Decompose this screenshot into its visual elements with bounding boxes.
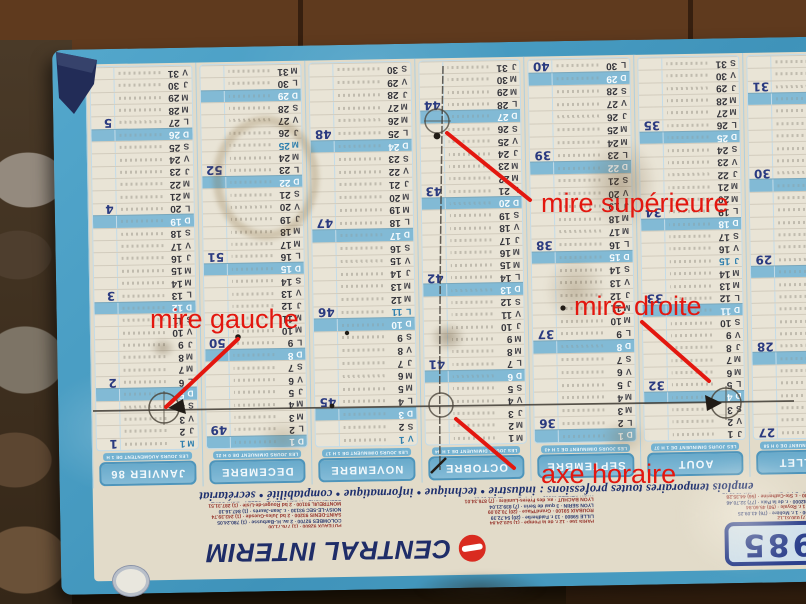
week-number-cell	[748, 56, 772, 68]
day-row-juillet-12: V12	[752, 289, 806, 303]
week-number-cell	[752, 279, 776, 291]
day-row-aout-6: M6	[643, 365, 744, 379]
saint-name-marks	[231, 267, 273, 271]
saint-name-marks	[229, 106, 271, 110]
week-number-cell: 3	[94, 290, 118, 302]
saint-name-marks	[448, 115, 490, 119]
week-number-cell	[421, 198, 445, 210]
saint-name-marks	[557, 102, 599, 106]
day-row-janvier-86-13: L133	[94, 288, 195, 302]
day-row-janvier-86-7: M7	[95, 362, 196, 376]
week-number-cell	[642, 268, 666, 280]
week-number-cell: 42	[423, 272, 447, 284]
week-number-cell	[201, 115, 225, 127]
day-letter: M	[400, 192, 409, 201]
day-number: 23	[275, 164, 290, 174]
day-row-janvier-86-2: J2	[97, 424, 198, 438]
day-row-janvier-86-16: J16	[93, 251, 194, 265]
saint-name-marks	[120, 158, 162, 162]
week-number-cell	[533, 341, 557, 353]
day-row-septembre-13: V13	[532, 275, 633, 290]
day-letter: D	[404, 409, 413, 418]
saint-name-marks	[670, 309, 712, 313]
day-number: 3	[389, 409, 404, 419]
day-letter: M	[404, 384, 413, 393]
month-subtitle-juillet: Les jours diminuent de 0 h 58 mn	[760, 440, 806, 450]
day-letter: L	[180, 117, 189, 126]
saint-name-marks	[562, 396, 604, 400]
week-number-cell	[202, 202, 226, 214]
day-letter: S	[182, 229, 191, 238]
day-row-decembre-3: M3	[206, 410, 307, 424]
saint-name-marks	[667, 111, 709, 115]
day-number: 10	[497, 321, 512, 331]
annotated-calendar-photo: 1985 CENTRAL INTERIM CHALINS 0600 · (7) …	[0, 0, 806, 604]
day-letter: D	[622, 341, 631, 350]
saint-name-marks	[339, 183, 381, 187]
saint-name-marks	[341, 246, 383, 250]
saint-name-marks	[559, 192, 601, 196]
saint-name-marks	[230, 168, 272, 172]
day-number: 15	[715, 255, 730, 265]
day-letter: M	[509, 173, 518, 182]
day-row-juillet-19: V19	[750, 202, 806, 216]
day-row-octobre-26: S26	[420, 121, 521, 135]
saint-name-marks	[339, 132, 381, 136]
day-letter: L	[292, 251, 301, 260]
day-row-janvier-86-29: M29	[91, 90, 192, 104]
day-letter: M	[730, 268, 739, 277]
day-row-juillet-26: V26	[749, 116, 806, 130]
week-number-cell	[530, 137, 554, 149]
day-row-septembre-10: M10	[533, 313, 634, 328]
week-number-cell	[316, 434, 340, 446]
day-number: 17	[605, 226, 620, 236]
day-number: 5	[169, 389, 184, 399]
saint-name-marks	[672, 383, 714, 387]
day-number: 11	[168, 314, 183, 324]
day-row-novembre-5: M5	[315, 381, 416, 396]
day-letter: V	[182, 241, 191, 250]
day-number: 24	[165, 154, 180, 164]
saint-name-marks	[667, 136, 709, 140]
saint-name-marks	[777, 109, 806, 113]
week-number-cell	[205, 350, 229, 362]
saint-name-marks	[776, 84, 806, 88]
day-row-octobre-11: V11	[423, 307, 524, 321]
saint-name-marks	[450, 251, 492, 255]
day-letter: V	[513, 396, 522, 405]
week-number-cell	[312, 230, 336, 242]
week-number-cell	[422, 260, 446, 272]
week-number-cell	[643, 367, 667, 379]
week-number-cell: 32	[644, 380, 668, 392]
day-letter: S	[291, 190, 300, 199]
day-number: 21	[166, 191, 181, 201]
day-row-septembre-12: J12	[533, 288, 634, 303]
week-number-cell	[96, 401, 120, 413]
week-number-cell	[424, 346, 448, 358]
saint-name-marks	[668, 160, 710, 164]
saint-name-marks	[666, 62, 708, 66]
week-number-cell: 46	[314, 307, 338, 319]
week-number-cell	[313, 256, 337, 268]
week-number-cell	[206, 412, 230, 424]
day-row-decembre-9: L950	[205, 335, 306, 349]
saint-name-marks	[673, 432, 715, 436]
week-number-cell	[200, 66, 224, 78]
day-row-octobre-17: J17	[422, 233, 523, 247]
saint-name-marks	[338, 80, 380, 84]
week-number-cell	[204, 325, 228, 337]
day-number: 27	[713, 107, 728, 117]
saint-name-marks	[343, 400, 385, 404]
day-row-novembre-26: M26	[310, 113, 411, 128]
day-letter: M	[732, 367, 741, 376]
month-subtitle-septembre: Les jours diminuent de 1 h 43 mn	[541, 444, 630, 454]
day-letter: L	[622, 329, 631, 338]
saint-name-marks	[558, 140, 600, 144]
day-number: 4	[279, 399, 294, 409]
day-row-decembre-7: S7	[205, 360, 306, 374]
saint-name-marks	[233, 353, 275, 357]
week-number-cell	[751, 266, 775, 278]
saint-name-marks	[119, 133, 161, 137]
day-number: 15	[277, 263, 292, 273]
month-subtitle-janvier-86: Les jours augmentent de 1 h 03 mn	[103, 452, 192, 462]
day-number: 29	[712, 82, 727, 92]
saint-name-marks	[779, 245, 806, 249]
week-number-cell	[749, 143, 773, 155]
day-number: 23	[494, 160, 509, 170]
saint-name-marks	[118, 71, 160, 75]
calendar-content-upside-down: 1985 CENTRAL INTERIM CHALINS 0600 · (7) …	[85, 51, 806, 581]
day-number: 15	[167, 265, 182, 275]
day-letter: M	[508, 75, 517, 84]
saint-name-marks	[343, 387, 385, 391]
saint-name-marks	[341, 259, 383, 263]
week-number-cell	[531, 226, 555, 238]
week-number-cell	[92, 191, 116, 203]
week-number-cell	[419, 87, 443, 99]
day-number: 20	[166, 203, 181, 213]
day-number: 17	[276, 238, 291, 248]
day-number: 7	[279, 362, 294, 372]
day-row-janvier-86-6: L62	[96, 374, 197, 388]
day-number: 14	[387, 268, 402, 278]
day-letter: L	[623, 418, 632, 427]
day-row-aout-21: M21	[640, 179, 741, 193]
day-letter: J	[730, 256, 739, 265]
day-number: 19	[714, 206, 729, 216]
day-number: 19	[605, 200, 620, 210]
day-letter: L	[511, 272, 520, 281]
day-number: 12	[168, 302, 183, 312]
day-row-octobre-21: L2143	[421, 183, 522, 197]
day-number: 12	[278, 300, 293, 310]
week-number-cell	[424, 371, 448, 383]
day-letter: M	[294, 412, 303, 421]
saint-name-marks	[668, 148, 710, 152]
day-row-aout-26: L2635	[639, 118, 740, 132]
day-row-octobre-3: J3	[425, 406, 526, 420]
day-number: 27	[165, 117, 180, 127]
day-letter: J	[291, 214, 300, 223]
day-letter: M	[727, 95, 736, 104]
saint-name-marks	[671, 333, 713, 337]
week-number-cell	[420, 111, 444, 123]
saint-name-marks	[670, 259, 712, 263]
day-letter: S	[183, 315, 192, 324]
week-number-cell	[419, 62, 443, 74]
day-number: 17	[386, 230, 401, 240]
saint-name-marks	[341, 272, 383, 276]
saint-name-marks	[233, 366, 275, 370]
saint-name-marks	[561, 319, 603, 323]
saint-name-marks	[234, 428, 276, 432]
day-row-octobre-30: M30	[419, 72, 520, 86]
day-row-juillet-8: L828	[753, 338, 806, 352]
day-number: 16	[277, 251, 292, 261]
saint-name-marks	[119, 108, 161, 112]
day-row-novembre-6: M6	[315, 368, 416, 383]
day-row-decembre-28: S28	[200, 101, 301, 115]
day-row-juillet-17: M17	[751, 227, 806, 241]
day-number: 13	[277, 288, 292, 298]
week-number-cell	[313, 268, 337, 280]
week-number-cell	[310, 115, 334, 127]
day-letter: L	[184, 377, 193, 386]
saint-name-marks	[559, 230, 601, 234]
saint-name-marks	[119, 121, 161, 125]
saint-name-marks	[778, 208, 806, 212]
day-number: 10	[716, 317, 731, 327]
saint-name-marks	[121, 207, 163, 211]
saint-name-marks	[229, 143, 271, 147]
saint-name-marks	[452, 374, 494, 378]
day-row-octobre-16: M16	[422, 245, 523, 259]
week-number-cell: 44	[420, 99, 444, 111]
day-number: 1	[609, 430, 624, 440]
saint-name-marks	[229, 119, 271, 123]
saint-name-marks	[781, 344, 806, 348]
day-number: 28	[165, 104, 180, 114]
day-letter: V	[180, 154, 189, 163]
day-letter: S	[730, 231, 739, 240]
saint-name-marks	[120, 182, 162, 186]
day-row-aout-3: S3	[644, 402, 745, 416]
day-letter: M	[511, 260, 520, 269]
saint-name-marks	[782, 393, 806, 397]
day-number: 23	[385, 153, 400, 163]
day-letter: M	[179, 93, 188, 102]
day-row-septembre-2: L236	[535, 415, 636, 430]
month-label-decembre: DECEMBRE	[209, 459, 306, 485]
day-row-septembre-7: S7	[534, 352, 635, 367]
day-row-aout-31: S31	[638, 56, 739, 70]
day-number: 1	[170, 438, 185, 448]
week-number-cell	[95, 340, 119, 352]
day-row-decembre-4: M4	[206, 397, 307, 411]
saint-name-marks	[776, 60, 806, 64]
day-number: 14	[715, 268, 730, 278]
month-label-octobre: OCTOBRE	[428, 455, 525, 481]
saint-name-marks	[447, 78, 489, 82]
day-row-janvier-86-22: M22	[92, 177, 193, 191]
day-number: 31	[164, 67, 179, 77]
day-letter: J	[727, 83, 736, 92]
week-number-cell	[425, 383, 449, 395]
week-number-cell	[203, 239, 227, 251]
day-number: 27	[274, 115, 289, 125]
day-letter: D	[508, 112, 517, 121]
saint-name-marks	[450, 226, 492, 230]
day-row-juillet-13: S13	[752, 276, 806, 290]
day-letter: L	[183, 290, 192, 299]
week-number-cell: 2	[96, 377, 120, 389]
month-days-juillet: L127M2M3J4V5S6D7L828M9M10J11V12S13D14L15…	[747, 53, 806, 440]
week-number-cell	[749, 118, 773, 130]
saint-name-marks	[453, 424, 495, 428]
day-number: 30	[602, 60, 617, 70]
day-number: 16	[496, 247, 511, 257]
day-letter: M	[399, 116, 408, 125]
day-row-octobre-4: V4	[425, 393, 526, 407]
week-number-cell	[422, 210, 446, 222]
week-number-cell	[313, 294, 337, 306]
day-row-juillet-29: L2931	[748, 79, 806, 93]
day-number: 27	[493, 111, 508, 121]
saint-name-marks	[452, 362, 494, 366]
day-letter: S	[185, 402, 194, 411]
week-number-cell	[95, 364, 119, 376]
calendar-sheet: 1985 CENTRAL INTERIM CHALINS 0600 · (7) …	[85, 51, 806, 581]
day-letter: M	[291, 227, 300, 236]
day-letter: J	[294, 387, 303, 396]
day-letter: M	[290, 153, 299, 162]
day-row-juillet-10: M10	[752, 313, 806, 327]
saint-name-marks	[344, 425, 386, 429]
day-number: 11	[387, 306, 402, 316]
day-row-juillet-20: S20	[750, 190, 806, 204]
day-number: 15	[605, 252, 620, 262]
saint-name-marks	[230, 205, 272, 209]
saint-name-marks	[450, 263, 492, 267]
day-row-janvier-86-10: V10	[95, 325, 196, 339]
week-number-cell	[643, 318, 667, 330]
saint-name-marks	[671, 358, 713, 362]
week-number-cell: 29	[751, 254, 775, 266]
week-number-cell	[644, 392, 668, 404]
saint-name-marks	[124, 380, 166, 384]
week-number-cell	[311, 153, 335, 165]
day-letter: S	[621, 265, 630, 274]
week-number-cell	[639, 83, 663, 95]
week-number-cell: 52	[202, 165, 226, 177]
day-number: 25	[165, 141, 180, 151]
day-row-octobre-28: L2844	[420, 97, 521, 111]
week-number-cell	[310, 102, 334, 114]
day-number: 28	[603, 86, 618, 96]
day-row-novembre-28: J28	[310, 87, 411, 102]
saint-name-marks	[558, 166, 600, 170]
week-number-cell	[640, 182, 664, 194]
day-number: 25	[494, 136, 509, 146]
day-row-octobre-7: L741	[424, 356, 525, 370]
week-number-cell	[96, 389, 120, 401]
saint-name-marks	[560, 268, 602, 272]
day-letter: D	[183, 303, 192, 312]
day-row-janvier-86-27: L275	[91, 115, 192, 129]
week-number-cell	[204, 276, 228, 288]
day-number: 24	[494, 148, 509, 158]
day-letter: J	[398, 90, 407, 99]
day-number: 2	[280, 424, 295, 434]
day-row-septembre-27: V27	[529, 96, 630, 111]
week-number-cell: 49	[206, 424, 230, 436]
day-number: 29	[383, 77, 398, 87]
day-number: 23	[604, 149, 619, 159]
day-letter: M	[514, 421, 523, 430]
saint-name-marks	[779, 233, 806, 237]
day-number: 4	[170, 401, 185, 411]
day-letter: V	[512, 309, 521, 318]
day-letter: S	[733, 404, 742, 413]
saint-name-marks	[125, 430, 167, 434]
week-number-cell	[205, 375, 229, 387]
week-number-cell	[534, 354, 558, 366]
saint-name-marks	[558, 153, 600, 157]
day-row-decembre-30: L30	[200, 76, 301, 90]
day-number: 30	[383, 64, 398, 74]
month-column-septembre: SEPTEMBRELes jours diminuent de 1 h 43 m…	[523, 55, 640, 481]
saint-name-marks	[450, 238, 492, 242]
day-row-aout-14: M14	[642, 266, 743, 280]
day-letter: M	[729, 182, 738, 191]
day-row-octobre-9: M9	[424, 332, 525, 346]
day-row-novembre-14: J14	[313, 266, 414, 281]
week-number-cell	[644, 417, 668, 429]
day-number: 29	[493, 86, 508, 96]
day-row-aout-28: M28	[639, 93, 740, 107]
day-letter: L	[402, 307, 411, 316]
month-column-novembre: NOVEMBRELes jours diminuent de 1 h 17 mn…	[304, 59, 421, 485]
day-letter: S	[728, 145, 737, 154]
saint-name-marks	[559, 204, 601, 208]
week-number-cell: 27	[754, 427, 778, 439]
week-number-cell	[642, 256, 666, 268]
day-number: 6	[498, 371, 513, 381]
saint-name-marks	[234, 403, 276, 407]
day-letter: J	[509, 149, 518, 158]
saint-name-marks	[451, 300, 493, 304]
day-letter: M	[181, 192, 190, 201]
day-number: 5	[389, 383, 404, 393]
day-number: 11	[606, 303, 621, 313]
day-row-aout-13: M13	[642, 278, 743, 292]
saint-name-marks	[563, 421, 605, 425]
day-number: 30	[712, 70, 727, 80]
day-letter: D	[728, 133, 737, 142]
week-number-cell: 5	[91, 117, 115, 129]
day-number: 28	[274, 102, 289, 112]
day-number: 5	[717, 379, 732, 389]
week-number-cell	[201, 140, 225, 152]
day-letter: D	[510, 198, 519, 207]
day-letter: J	[290, 128, 299, 137]
day-row-decembre-25: M25	[201, 138, 302, 152]
day-number: 19	[166, 216, 181, 226]
